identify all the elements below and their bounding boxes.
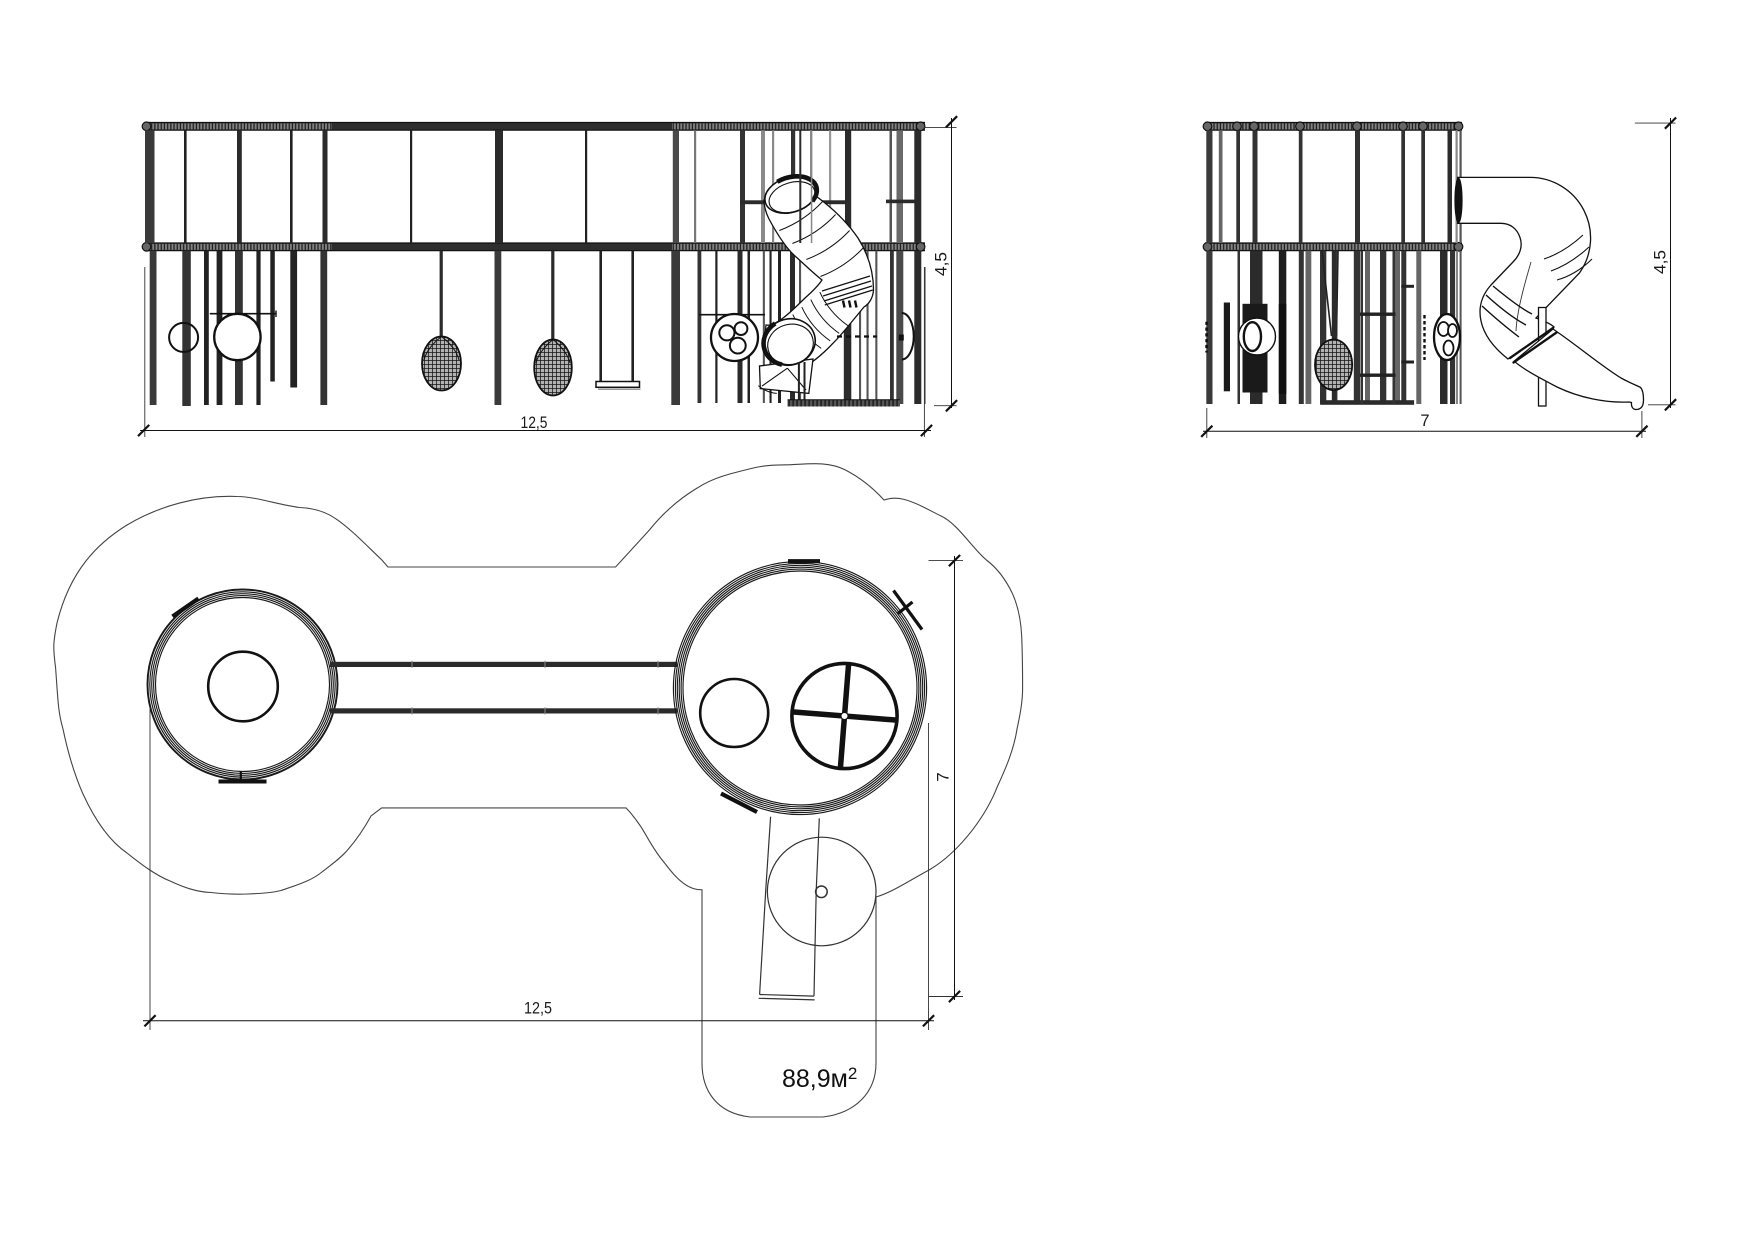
- svg-text:7: 7: [934, 772, 953, 781]
- svg-text:12,5: 12,5: [524, 999, 552, 1018]
- svg-text:4,5: 4,5: [1652, 250, 1670, 274]
- svg-text:88,9м2: 88,9м2: [782, 1064, 857, 1093]
- svg-text:4,5: 4,5: [933, 252, 951, 276]
- svg-text:7: 7: [1420, 412, 1429, 430]
- svg-text:12,5: 12,5: [521, 414, 548, 432]
